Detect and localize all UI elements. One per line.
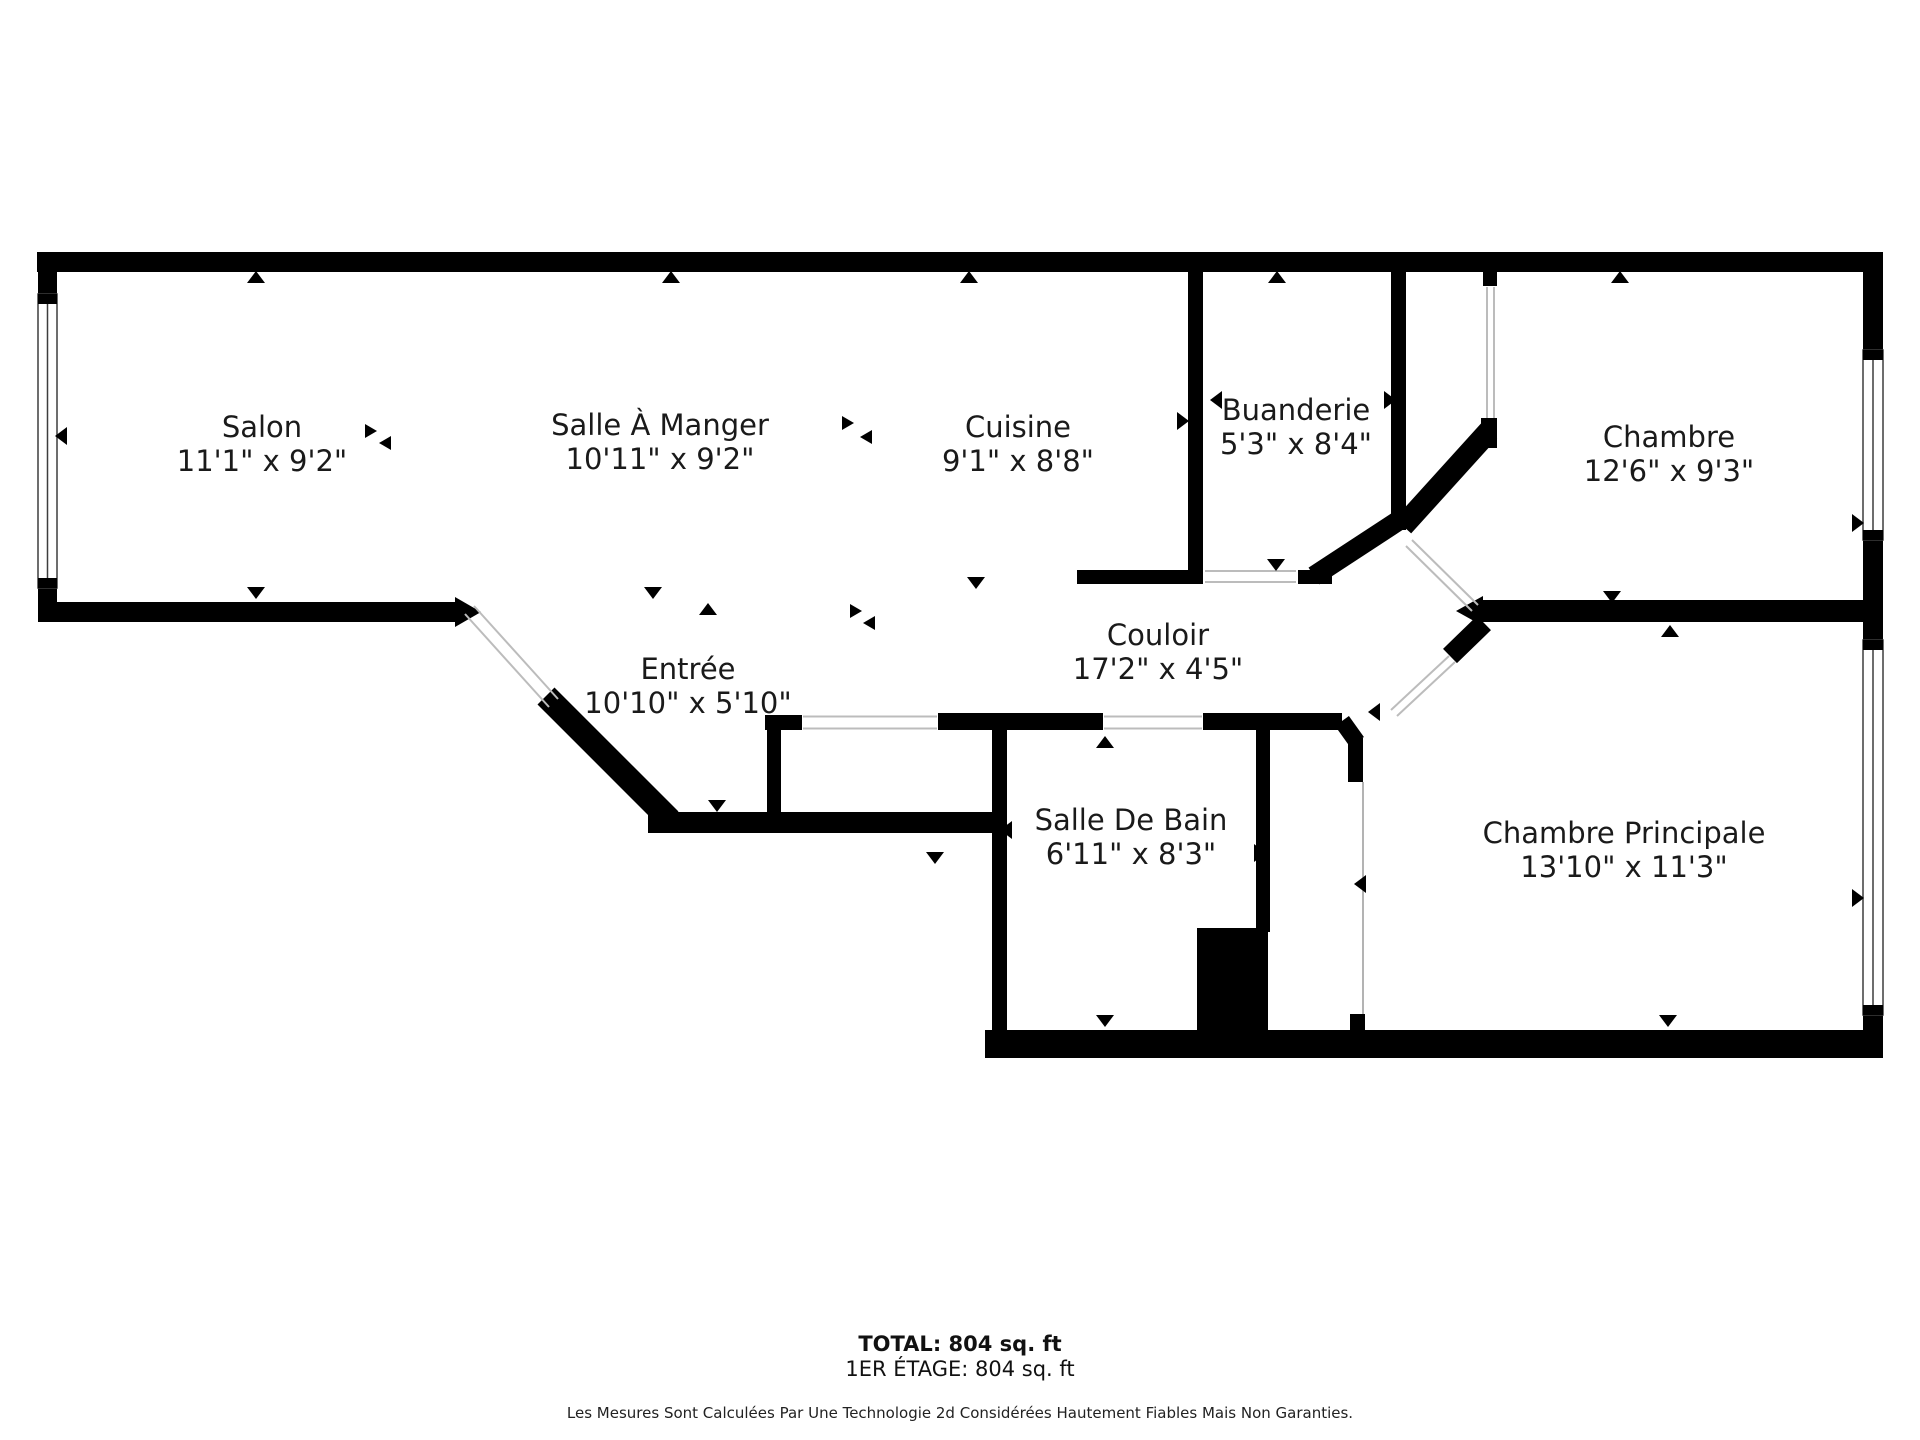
wall-cuisine-bottom xyxy=(1077,570,1203,584)
wall-diagonal-vestibule xyxy=(1450,623,1484,656)
room-dimensions: 9'1" x 8'8" xyxy=(942,444,1094,478)
marker-down-icon xyxy=(247,587,265,599)
room-label-salle-a-manger: Salle À Manger 10'11" x 9'2" xyxy=(551,408,769,476)
wall-right-upper xyxy=(1863,252,1883,352)
door-swing-entrance-1 xyxy=(474,606,558,699)
room-name: Entrée xyxy=(584,652,791,686)
window-chambre-principale-cap-bottom xyxy=(1863,1005,1883,1015)
room-name: Chambre Principale xyxy=(1483,816,1766,850)
window-chambre-principale-cap-top xyxy=(1863,640,1883,650)
room-name: Salle À Manger xyxy=(551,408,769,442)
marker-up-icon xyxy=(960,271,978,283)
marker-down-icon xyxy=(967,577,985,589)
wall-closet-left xyxy=(767,715,781,813)
wall-top xyxy=(37,252,1883,272)
wall-right-lower xyxy=(1863,1013,1883,1058)
room-name: Salon xyxy=(177,410,347,444)
room-label-chambre-principale: Chambre Principale 13'10" x 11'3" xyxy=(1483,816,1766,884)
marker-left-icon xyxy=(1354,875,1366,893)
wall-diagonal-chambre-stub xyxy=(1481,418,1497,448)
marker-down-icon xyxy=(708,800,726,812)
total-area-text: TOTAL: 804 sq. ft xyxy=(0,1332,1920,1356)
room-name: Chambre xyxy=(1584,420,1754,454)
door-chambre-principale-swing-1 xyxy=(1391,656,1449,710)
marker-left-icon xyxy=(1368,703,1380,721)
room-name: Couloir xyxy=(1073,618,1243,652)
wall-bathroom-right xyxy=(1256,713,1270,932)
room-dimensions: 10'11" x 9'2" xyxy=(551,442,769,476)
room-dimensions: 12'6" x 9'3" xyxy=(1584,454,1754,488)
wall-couloir-bottom-right xyxy=(1203,713,1342,730)
bathroom-block xyxy=(1197,928,1268,1032)
wall-couloir-bottom-left xyxy=(938,713,1103,730)
marker-up-icon xyxy=(1096,736,1114,748)
marker-up-icon xyxy=(1611,271,1629,283)
marker-right-icon xyxy=(1177,412,1189,430)
marker-up-icon xyxy=(699,603,717,615)
marker-up-icon xyxy=(1661,625,1679,637)
marker-right-icon xyxy=(1852,514,1864,532)
room-name: Cuisine xyxy=(942,410,1094,444)
marker-up-icon xyxy=(247,271,265,283)
room-dimensions: 5'3" x 8'4" xyxy=(1220,427,1372,461)
wall-shared-bedrooms xyxy=(1483,600,1863,622)
door-leaf-cap xyxy=(1350,1014,1365,1032)
wall-entree-bottom xyxy=(648,812,1007,833)
wall-salon-bottom xyxy=(38,602,455,622)
marker-left-icon xyxy=(379,436,391,450)
door-vestibule-1 xyxy=(1412,540,1478,605)
room-dimensions: 13'10" x 11'3" xyxy=(1483,850,1766,884)
marker-down-icon xyxy=(1267,559,1285,571)
room-dimensions: 17'2" x 4'5" xyxy=(1073,652,1243,686)
wall-bathroom-left xyxy=(992,715,1007,1032)
marker-left-icon xyxy=(860,430,872,444)
marker-right-icon xyxy=(365,424,377,438)
walls xyxy=(37,252,1883,1058)
wall-diagonal-chambre xyxy=(1403,431,1489,526)
room-label-salon: Salon 11'1" x 9'2" xyxy=(177,410,347,478)
dimension-markers xyxy=(55,271,1864,1027)
room-label-chambre: Chambre 12'6" x 9'3" xyxy=(1584,420,1754,488)
windows xyxy=(38,294,1883,1015)
marker-down-icon xyxy=(926,852,944,864)
room-dimensions: 10'10" x 5'10" xyxy=(584,686,791,720)
marker-down-icon xyxy=(1659,1015,1677,1027)
wall-y-junction-stub xyxy=(1348,738,1363,782)
marker-right-icon xyxy=(842,416,854,430)
floor-plan-page: Salon 11'1" x 9'2" Salle À Manger 10'11"… xyxy=(0,0,1920,1440)
room-label-couloir: Couloir 17'2" x 4'5" xyxy=(1073,618,1243,686)
marker-right-icon xyxy=(1852,889,1864,907)
wall-cuisine-divider xyxy=(1188,270,1203,584)
wall-salon-bottom-arrow xyxy=(455,597,481,627)
door-swing-entrance-2 xyxy=(465,614,549,707)
wall-bottom xyxy=(985,1030,1883,1058)
room-dimensions: 11'1" x 9'2" xyxy=(177,444,347,478)
marker-down-icon xyxy=(1096,1015,1114,1027)
wall-diagonal-buanderie xyxy=(1314,521,1398,576)
room-label-cuisine: Cuisine 9'1" x 8'8" xyxy=(942,410,1094,478)
marker-left-icon xyxy=(863,616,875,630)
floor-plan-drawing xyxy=(0,0,1920,1440)
window-chambre-cap-top xyxy=(1863,350,1883,360)
marker-down-icon xyxy=(644,587,662,599)
window-salon-cap-top xyxy=(38,294,57,304)
marker-right-icon xyxy=(850,604,862,618)
marker-up-icon xyxy=(662,271,680,283)
window-chambre-cap-bottom xyxy=(1863,530,1883,540)
room-label-salle-de-bain: Salle De Bain 6'11" x 8'3" xyxy=(1035,803,1228,871)
room-dimensions: 6'11" x 8'3" xyxy=(1035,837,1228,871)
disclaimer-text: Les Mesures Sont Calculées Par Une Techn… xyxy=(0,1404,1920,1422)
room-label-buanderie: Buanderie 5'3" x 8'4" xyxy=(1220,393,1372,461)
marker-up-icon xyxy=(1268,271,1286,283)
door-chambre-principale-swing-2 xyxy=(1397,662,1455,716)
wall-right-middle xyxy=(1863,538,1883,642)
door-vestibule-2 xyxy=(1406,546,1472,611)
wall-left-upper xyxy=(38,252,57,294)
wall-chambre-stub xyxy=(1483,270,1497,286)
window-salon-cap-bottom xyxy=(38,578,57,588)
room-name: Salle De Bain xyxy=(1035,803,1228,837)
room-name: Buanderie xyxy=(1220,393,1372,427)
floor-area-text: 1ER ÉTAGE: 804 sq. ft xyxy=(0,1357,1920,1381)
room-label-entree: Entrée 10'10" x 5'10" xyxy=(584,652,791,720)
